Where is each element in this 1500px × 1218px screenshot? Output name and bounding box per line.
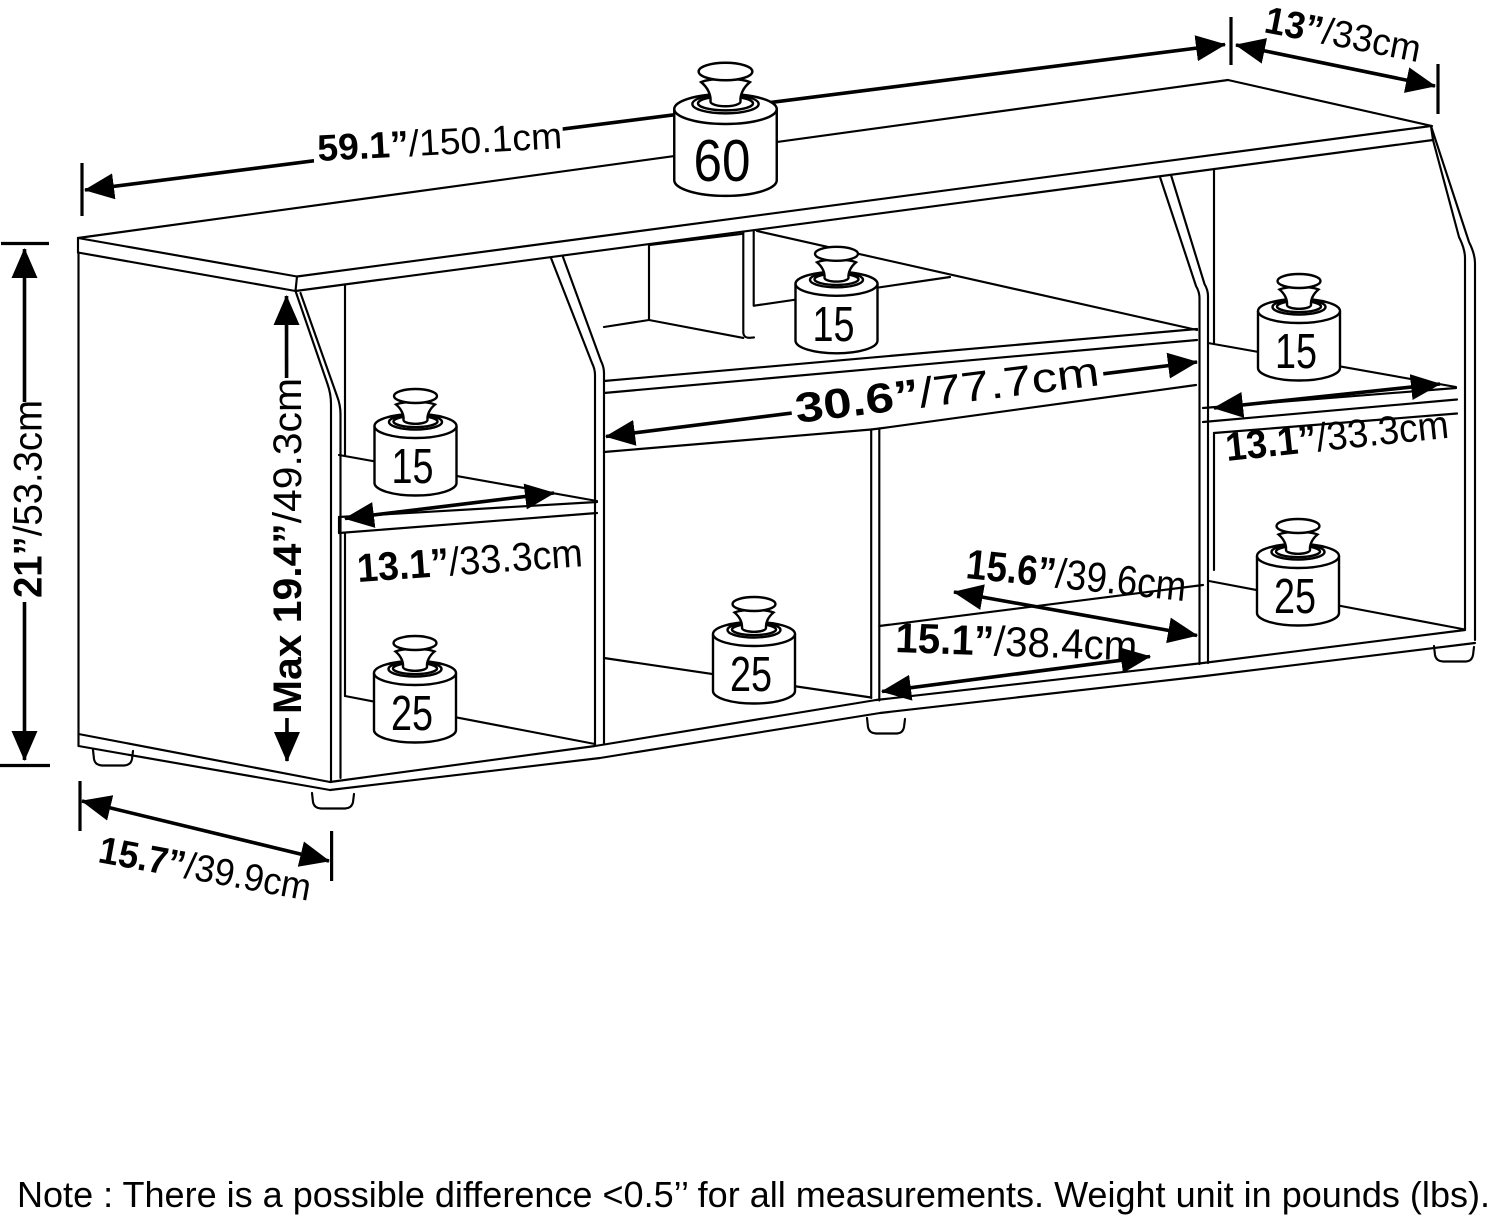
svg-text:60: 60 [694,128,751,194]
svg-text:15: 15 [813,298,855,352]
svg-text:21”/53.3cm: 21”/53.3cm [7,400,51,598]
svg-text:25: 25 [391,687,433,741]
svg-text:15: 15 [392,440,434,494]
svg-text:15: 15 [1275,325,1317,379]
svg-text:Note : There is a possible dif: Note : There is a possible difference <0… [17,1174,1490,1215]
svg-text:25: 25 [730,648,772,702]
svg-text:25: 25 [1274,570,1316,624]
svg-text:Max 19.4”/49.3cm: Max 19.4”/49.3cm [266,378,310,714]
svg-text:15.1”/38.4cm: 15.1”/38.4cm [895,614,1138,669]
